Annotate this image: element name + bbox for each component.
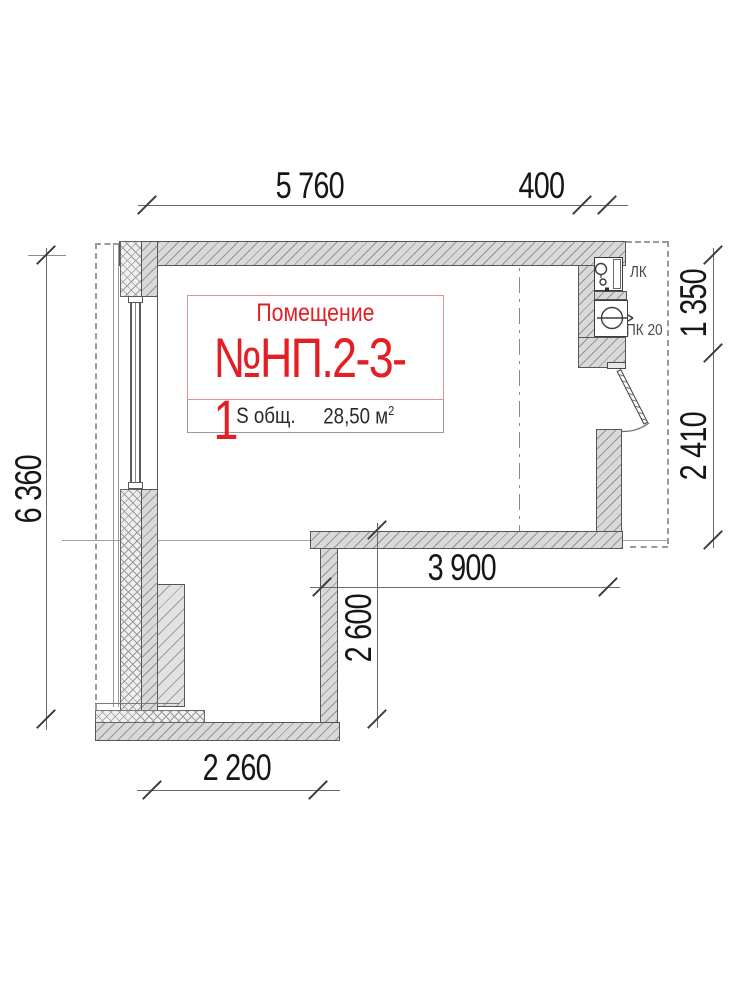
wall-bottom — [95, 722, 340, 741]
boundary-dashed-left — [95, 243, 97, 710]
wall-left-upper-pier — [141, 241, 158, 297]
wall-bottom-insulation — [95, 710, 205, 723]
axis-line-horizontal-right — [623, 540, 668, 541]
wall-lower-vertical — [320, 548, 338, 723]
dim-top-small: 400 — [461, 168, 621, 204]
door-swing-arc — [595, 360, 675, 440]
dim-left: 6 360 — [11, 409, 47, 569]
floor-plan-canvas: Помещение №НП.2-3-1 S общ. 28,50 м2 ЛК П… — [0, 0, 747, 983]
wall-left-inner-face — [157, 266, 158, 722]
wall-left-lower-pier — [141, 489, 158, 712]
dim-line-bottom — [137, 790, 340, 791]
window-frame-bottom — [128, 482, 143, 489]
room-area-label: S общ. — [236, 403, 295, 429]
room-label-upper: Помещение №НП.2-3-1 — [187, 295, 444, 400]
boundary-dashed-top-right — [626, 241, 668, 243]
dim-right-bottom: 2 410 — [676, 366, 712, 526]
room-area-sup: 2 — [388, 403, 394, 418]
dim-inner-v: 2 600 — [341, 548, 377, 708]
axis-line-horizontal-left — [62, 540, 318, 541]
boundary-dashed-bottom-right — [630, 546, 668, 548]
room-label-box: Помещение №НП.2-3-1 S общ. 28,50 м2 — [187, 295, 444, 433]
dim-right-top: 1 350 — [676, 223, 712, 383]
dim-bottom: 2 260 — [157, 750, 317, 786]
room-area-value: 28,50 м2 — [323, 403, 394, 429]
label-lk: ЛК — [630, 264, 650, 282]
dim-inner-h: 3 900 — [382, 550, 542, 586]
label-pk20: ПК 20 — [626, 322, 669, 340]
wall-top — [119, 241, 626, 266]
window-frame-top — [128, 296, 143, 303]
room-caption: Помещение — [256, 300, 374, 327]
wall-left-inner-block — [157, 584, 185, 707]
room-number: №НП.2-3-1 — [214, 327, 418, 451]
wall-left-lower-insulation — [120, 489, 142, 712]
wall-left-upper-insulation — [120, 241, 142, 297]
dim-top-main: 5 760 — [230, 168, 390, 204]
window-glazing-centerline — [135, 300, 136, 484]
wall-bottom-lining — [95, 703, 180, 711]
wall-left-facade-line — [113, 243, 119, 707]
axis-line-vertical — [519, 246, 520, 531]
